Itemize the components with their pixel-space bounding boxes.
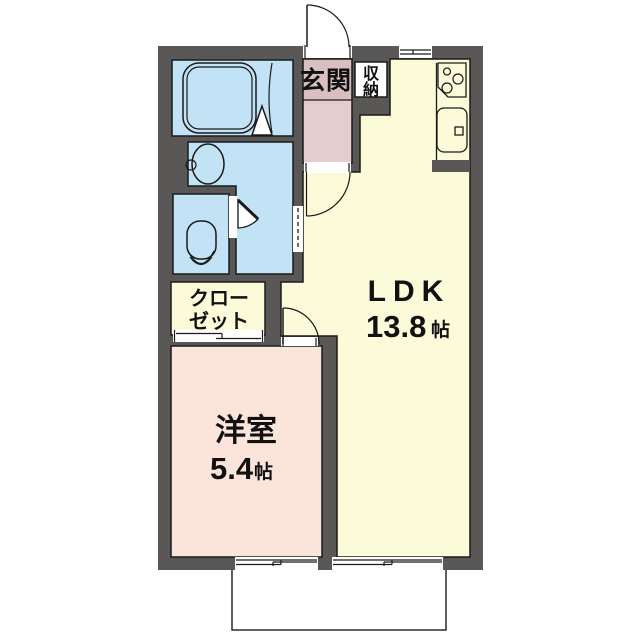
genkan-hall [303, 100, 352, 163]
closet-label-line1: クロー [189, 287, 249, 310]
genkan-label: 玄関 [300, 66, 352, 95]
kitchen-wall-stub [432, 160, 470, 172]
closet-label-line2: ゼット [189, 309, 249, 333]
western-room-area-unit: 帖 [254, 460, 273, 483]
ldk-area-value: 13.8 [366, 309, 426, 344]
western-room-window [235, 557, 318, 570]
ldk-area-unit: 帖 [431, 318, 450, 341]
balcony [232, 566, 446, 630]
floorplan-page: 玄関 収 納 LDK 13.8 帖 洋室 5.4 帖 クロー ゼット [0, 0, 640, 640]
western-room-label: 洋室 [215, 413, 277, 448]
ldk-label: LDK [368, 275, 451, 308]
floorplan-canvas: 玄関 収 納 LDK 13.8 帖 洋室 5.4 帖 クロー ゼット [0, 0, 640, 640]
kitchen-window [399, 46, 432, 58]
stove-icon [438, 63, 466, 97]
storage-label-char1: 収 [363, 65, 380, 83]
western-room-area-value: 5.4 [210, 451, 254, 486]
ldk-window [332, 557, 443, 570]
storage-label-char2: 納 [363, 80, 379, 99]
entrance-door [303, 5, 352, 58]
washroom-sliding-door [293, 206, 303, 252]
toilet-room [173, 194, 229, 274]
